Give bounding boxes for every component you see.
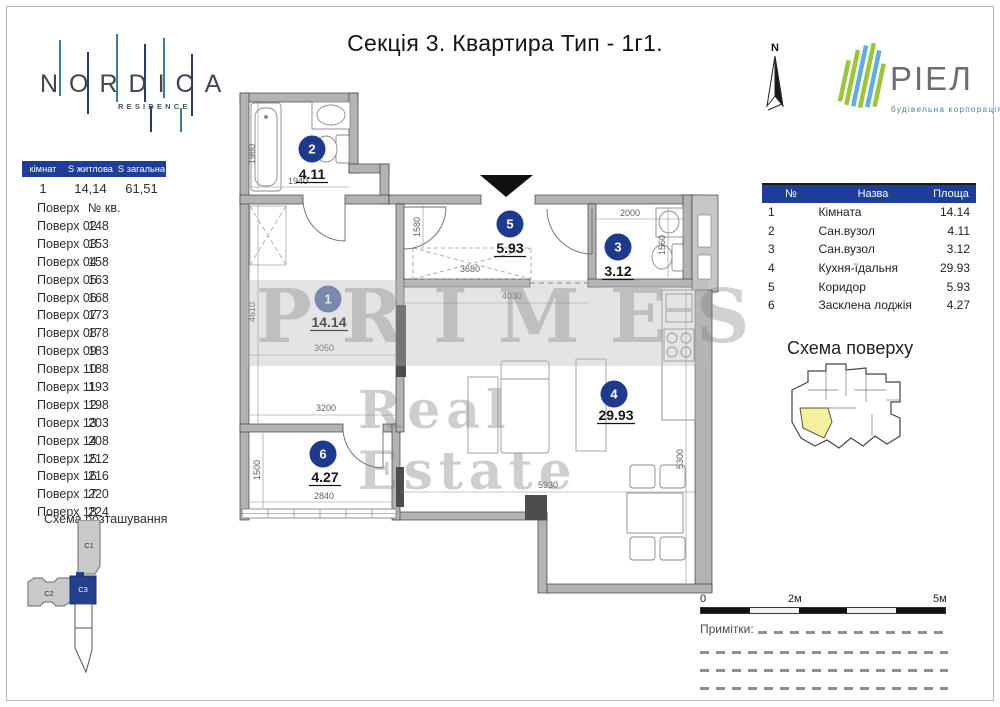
notes-line (700, 687, 948, 690)
room-table-row: 6Засклена лоджія4.27 (762, 296, 976, 315)
floor-plan-page: Секція 3. Квартира Тип - 1г1. NORDICA RE… (0, 0, 1000, 707)
dining-set (627, 465, 685, 560)
wc-sink (656, 208, 683, 237)
room-badge-1: 1 14.14 (310, 286, 348, 331)
svg-text:4: 4 (610, 387, 618, 402)
building-c1: C1 (78, 520, 100, 574)
scale-label-0: 0 (700, 593, 706, 605)
svg-text:2000: 2000 (620, 208, 640, 218)
svg-text:4610: 4610 (247, 302, 257, 322)
bathroom-sink (312, 102, 350, 129)
nordica-logo: NORDICA RESIDENCE (32, 42, 217, 127)
floor-row: Поверх 14208 (37, 434, 167, 452)
rooms-table-header: № Назва Площа (762, 185, 976, 203)
svg-text:C2: C2 (44, 589, 54, 598)
rooms-header-area: Площа (926, 188, 976, 200)
riel-icon (836, 38, 892, 128)
floors-header-floor: Поверх (37, 201, 79, 215)
room-badge-3: 3 3.12 (602, 234, 634, 280)
floors-table-header: Поверх № кв. (37, 201, 167, 218)
notes-line (700, 669, 948, 672)
svg-text:1500: 1500 (252, 460, 262, 480)
floor-row: Поверх 15212 (37, 452, 167, 470)
rooms-header-name: Назва (820, 188, 926, 200)
notes-label: Примітки: (700, 622, 754, 636)
svg-text:3: 3 (614, 240, 621, 255)
floor-row: Поверх 17220 (37, 487, 167, 505)
summary-table-values: 1 14,14 61,51 (22, 181, 166, 196)
floor-scheme-title: Схема поверху (787, 338, 913, 359)
floor-row: Поверх 03153 (37, 237, 167, 255)
svg-text:2: 2 (308, 142, 315, 157)
room1-closet (250, 206, 286, 265)
floors-header-apt: № кв. (88, 201, 120, 215)
svg-text:5300: 5300 (675, 449, 685, 469)
rooms-table: № Назва Площа 1Кімната14.142Сан.вузол4.1… (762, 183, 976, 315)
floor-row: Поверх 09183 (37, 344, 167, 362)
floor-row: Поверх 02148 (37, 219, 167, 237)
kitchen-island (576, 359, 606, 451)
north-arrow: N (760, 42, 790, 122)
floor-row: Поверх 07173 (37, 308, 167, 326)
floor-scheme-miniplan (786, 360, 914, 488)
svg-text:3.12: 3.12 (604, 263, 631, 279)
svg-text:3200: 3200 (316, 403, 336, 413)
svg-text:5.93: 5.93 (496, 240, 523, 256)
entrance-arrow (480, 175, 533, 197)
svg-text:C3: C3 (78, 585, 88, 594)
room-table-row: 1Кімната14.14 (762, 203, 976, 222)
svg-text:1980: 1980 (247, 144, 257, 164)
svg-text:2840: 2840 (314, 491, 334, 501)
svg-text:3680: 3680 (460, 264, 480, 274)
svg-text:C1: C1 (84, 541, 94, 550)
floor-row: Поверх 04158 (37, 255, 167, 273)
svg-text:1: 1 (324, 292, 331, 307)
logo-bar (180, 108, 182, 132)
summary-value-rooms: 1 (22, 181, 64, 196)
scale-label-5m: 5м (933, 593, 947, 605)
page-title: Секція 3. Квартира Тип - 1г1. (285, 30, 725, 57)
scale-label-2m: 2м (788, 593, 802, 605)
svg-text:6: 6 (319, 447, 326, 462)
riel-wordmark: РІЕЛ (890, 60, 973, 98)
svg-text:29.93: 29.93 (598, 407, 633, 423)
site-outline-unit (75, 604, 92, 672)
summary-header-living: S житлова (64, 164, 117, 174)
room-table-row: 3Сан.вузол3.12 (762, 240, 976, 259)
shaft-niches (698, 215, 711, 279)
floor-row: Поверх 12198 (37, 398, 167, 416)
nordica-wordmark: NORDICA (40, 70, 232, 99)
svg-text:4030: 4030 (502, 291, 522, 301)
room-table-row: 5Коридор5.93 (762, 277, 976, 296)
compass-needle-icon (762, 54, 788, 118)
building-c3-highlighted: C3 (70, 572, 96, 604)
room-table-row: 4Кухня-їдальня29.93 (762, 259, 976, 278)
floor-row: Поверх 11193 (37, 380, 167, 398)
svg-text:3050: 3050 (314, 343, 334, 353)
riel-logo: РІЕЛ будівельна корпорація (836, 38, 986, 128)
svg-text:14.14: 14.14 (311, 314, 346, 330)
room-table-row: 2Сан.вузол4.11 (762, 222, 976, 241)
summary-value-living: 14,14 (64, 181, 117, 196)
summary-header-rooms: кімнат (22, 164, 64, 174)
svg-text:4.27: 4.27 (311, 469, 338, 485)
scale-bar-segments (700, 607, 946, 614)
floor-row: Поверх 13203 (37, 416, 167, 434)
site-location-scheme: C1 C2 C3 (12, 520, 192, 692)
kitchen-counter (662, 290, 695, 420)
riel-subtitle: будівельна корпорація (891, 104, 1000, 114)
rooms-header-num: № (762, 188, 820, 200)
svg-text:1580: 1580 (412, 217, 422, 237)
summary-header-total: S загальна (117, 164, 166, 174)
floor-row: Поверх 08178 (37, 326, 167, 344)
svg-text:5: 5 (506, 217, 513, 232)
apartment-floor-plan: 1980 1940 1580 3680 2000 1560 4610 3050 … (228, 87, 720, 619)
floors-table-body: Поверх 02148Поверх 03153Поверх 04158Пове… (37, 219, 167, 523)
building-c2: C2 (28, 578, 70, 606)
floor-row: Поверх 06168 (37, 291, 167, 309)
north-label: N (760, 42, 790, 54)
floor-row: Поверх 10188 (37, 362, 167, 380)
notes-line (758, 631, 948, 634)
loggia-glazing (242, 509, 396, 518)
room-badge-6: 6 4.27 (309, 441, 341, 486)
room-badge-5: 5 5.93 (494, 211, 526, 257)
svg-text:5930: 5930 (538, 480, 558, 490)
rooms-table-body: 1Кімната14.142Сан.вузол4.113Сан.вузол3.1… (762, 203, 976, 315)
floor-row: Поверх 05163 (37, 273, 167, 291)
summary-value-total: 61,51 (117, 181, 166, 196)
svg-text:1560: 1560 (657, 235, 667, 255)
notes-block: Примітки: (700, 616, 948, 690)
summary-table-header: кімнат S житлова S загальна (22, 161, 166, 177)
notes-line (700, 651, 948, 654)
svg-text:4.11: 4.11 (299, 166, 326, 182)
nordica-residence-label: RESIDENCE (118, 102, 191, 111)
floor-row: Поверх 16216 (37, 469, 167, 487)
kitchen-sofa (468, 361, 549, 453)
